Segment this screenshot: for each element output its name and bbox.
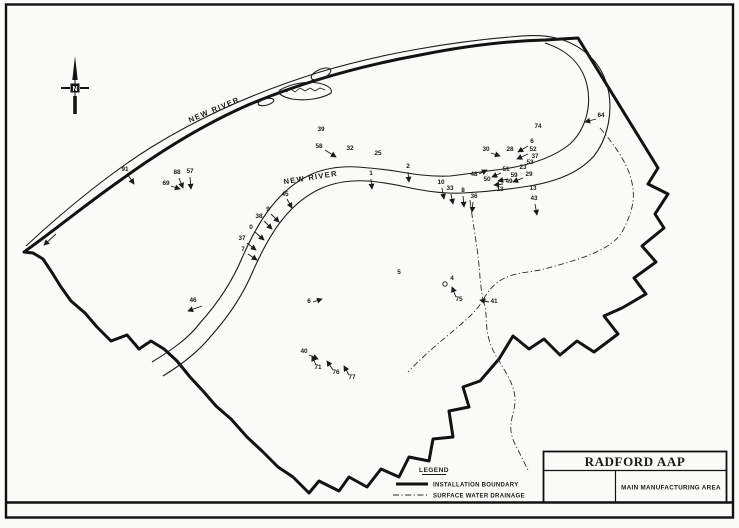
site-number-label: 10 <box>437 179 445 186</box>
site-arrow <box>371 179 372 189</box>
site-marker: 75 <box>452 287 463 303</box>
site-number-label: 13 <box>529 185 537 192</box>
site-marker: 4 <box>450 275 454 282</box>
site-marker: 25 <box>374 150 382 157</box>
site-number-label: 0 <box>249 224 253 231</box>
site-arrow <box>313 299 322 302</box>
site-arrow <box>472 202 473 212</box>
site-number-label: 48 <box>470 171 478 178</box>
site-number-label: 32 <box>346 145 354 152</box>
site-number-label: 23 <box>519 164 527 171</box>
site-arrow <box>248 254 257 260</box>
site-number-label: 88 <box>173 169 181 176</box>
site-arrow <box>327 361 333 370</box>
site-number-label: 2 <box>406 163 410 170</box>
site-arrow <box>463 196 464 207</box>
site-marker: 40 <box>300 348 318 359</box>
site-number-label: 43 <box>530 195 538 202</box>
river-paths <box>26 36 610 376</box>
site-number-label: 46 <box>189 297 197 304</box>
site-number-label: 76 <box>332 369 340 376</box>
site-arrow <box>179 178 183 188</box>
site-number-label: 52 <box>529 146 537 153</box>
site-marker: 58 <box>315 143 336 157</box>
site-marker: 30 <box>482 146 500 156</box>
site-arrow <box>535 204 537 215</box>
site-number-label: 49 <box>505 178 513 185</box>
site-number-label: 4 <box>450 275 454 282</box>
drainage-to-river <box>470 200 483 300</box>
river-inner-bank <box>152 43 589 362</box>
sites-layer: 9169885739583225459380377121033836431313… <box>121 112 605 381</box>
title-block-title: RADFORD AAP <box>585 454 686 469</box>
title-block: RADFORD AAP MAIN MANUFACTURING AREA <box>544 452 727 503</box>
site-number-label: 30 <box>482 146 490 153</box>
site-arrow <box>442 188 444 199</box>
site-arrow <box>128 175 134 184</box>
site-number-label: 6 <box>307 298 311 305</box>
site-number-label: 5 <box>397 269 401 276</box>
site-number-label: 36 <box>470 193 478 200</box>
site-marker: 1 <box>369 170 373 189</box>
site-marker: 5 <box>397 269 401 276</box>
site-marker: 33 <box>446 185 454 204</box>
site-marker: 69 <box>162 180 180 189</box>
site-marker: 39 <box>317 126 325 133</box>
site-marker: 28 <box>506 146 514 153</box>
river-labels-layer: NEW RIVERNEW RIVER <box>187 95 338 186</box>
site-number-label: 51 <box>502 166 510 173</box>
site-number-label: 28 <box>506 146 514 153</box>
site-number-label: 8 <box>461 187 465 194</box>
site-arrow <box>287 199 292 208</box>
site-marker: 13 <box>496 186 504 193</box>
site-number-label: 53 <box>526 159 534 166</box>
site-marker: 8 <box>461 187 465 207</box>
site-arrow <box>171 186 180 189</box>
site-marker: 57 <box>186 168 194 189</box>
site-marker: 13 <box>529 185 537 192</box>
site-arrow <box>518 146 528 152</box>
site-number-label: 13 <box>496 186 504 193</box>
site-number-label: 58 <box>315 143 323 150</box>
site-number-label: 69 <box>162 180 170 187</box>
site-number-label: 77 <box>348 374 356 381</box>
site-number-label: 37 <box>238 235 246 242</box>
site-arrow <box>188 306 202 311</box>
site-arrow <box>491 153 500 156</box>
site-number-label: 33 <box>446 185 454 192</box>
site-number-label: 57 <box>186 168 194 175</box>
site-arrow <box>480 300 489 302</box>
site-arrow <box>494 184 503 185</box>
site-marker: 45 <box>281 191 292 208</box>
site-marker: 7 <box>241 246 257 260</box>
site-marker: 51 <box>492 166 510 177</box>
site-marker: 53 <box>526 159 534 166</box>
site-marker: 23 <box>519 164 527 171</box>
legend-heading: LEGEND <box>419 467 449 474</box>
site-marker: 50 <box>483 176 491 183</box>
map-canvas: N NEW RIVERNEW RIVER 9169885739583225459… <box>0 0 739 523</box>
map-page: N NEW RIVERNEW RIVER 9169885739583225459… <box>0 0 739 523</box>
site-number-label: 1 <box>369 170 373 177</box>
site-number-label: 41 <box>490 298 498 305</box>
site-number-label: 75 <box>455 296 463 303</box>
site-number-label: 9 <box>266 206 270 213</box>
site-marker: 77 <box>344 366 356 381</box>
site-marker: 10 <box>437 179 445 199</box>
drainage-south <box>483 300 528 470</box>
site-arrow <box>271 214 279 222</box>
site-number-label: 7 <box>241 246 245 253</box>
north-arrow: N <box>61 56 89 114</box>
installation-boundary-path <box>24 38 668 493</box>
site-number-label: 74 <box>534 123 542 130</box>
site-number-label: 40 <box>300 348 308 355</box>
title-block-subtitle: MAIN MANUFACTURING AREA <box>621 485 721 492</box>
north-arrow-label: N <box>72 86 77 93</box>
site-number-label: 29 <box>525 171 533 178</box>
site-marker: 9 <box>266 206 279 222</box>
site-number-label: 25 <box>374 150 382 157</box>
site-arrow <box>247 243 256 250</box>
site-number-label: 64 <box>597 112 605 119</box>
site-marker: 74 <box>534 123 542 130</box>
site-number-label: 6 <box>530 138 534 145</box>
site-arrow <box>492 173 501 177</box>
legend: LEGEND INSTALLATION BOUNDARY SURFACE WAT… <box>393 467 525 500</box>
north-arrow-head <box>72 56 77 80</box>
site-marker: 43 <box>530 195 538 215</box>
legend-drainage-label: SURFACE WATER DRAINAGE <box>433 494 525 500</box>
river-name-label: NEW RIVER <box>283 169 338 186</box>
river-north-outer-bank <box>26 36 610 376</box>
site-marker: 49 <box>494 178 513 185</box>
site-marker: 6 <box>307 298 322 305</box>
site-arrow <box>344 366 349 375</box>
site-marker: 76 <box>327 361 340 376</box>
site-number-label: 91 <box>121 166 129 173</box>
site-arrow <box>255 232 264 240</box>
site-marker: 32 <box>346 145 354 152</box>
spot-circle <box>443 282 447 286</box>
site-number-label: 39 <box>317 126 325 133</box>
site-arrow <box>451 194 453 204</box>
site-arrow <box>325 150 336 157</box>
site-arrow <box>190 177 191 189</box>
site-arrow <box>452 287 456 297</box>
site-number-label: 45 <box>281 191 289 198</box>
legend-boundary-label: INSTALLATION BOUNDARY <box>433 483 519 489</box>
site-arrow <box>585 119 596 122</box>
site-arrow <box>264 221 272 229</box>
site-marker: 88 <box>173 169 183 188</box>
site-marker: 64 <box>585 112 605 122</box>
page-frame <box>6 5 733 518</box>
site-number-label: 50 <box>483 176 491 183</box>
site-marker: 46 <box>188 297 202 311</box>
site-number-label: 38 <box>255 213 263 220</box>
